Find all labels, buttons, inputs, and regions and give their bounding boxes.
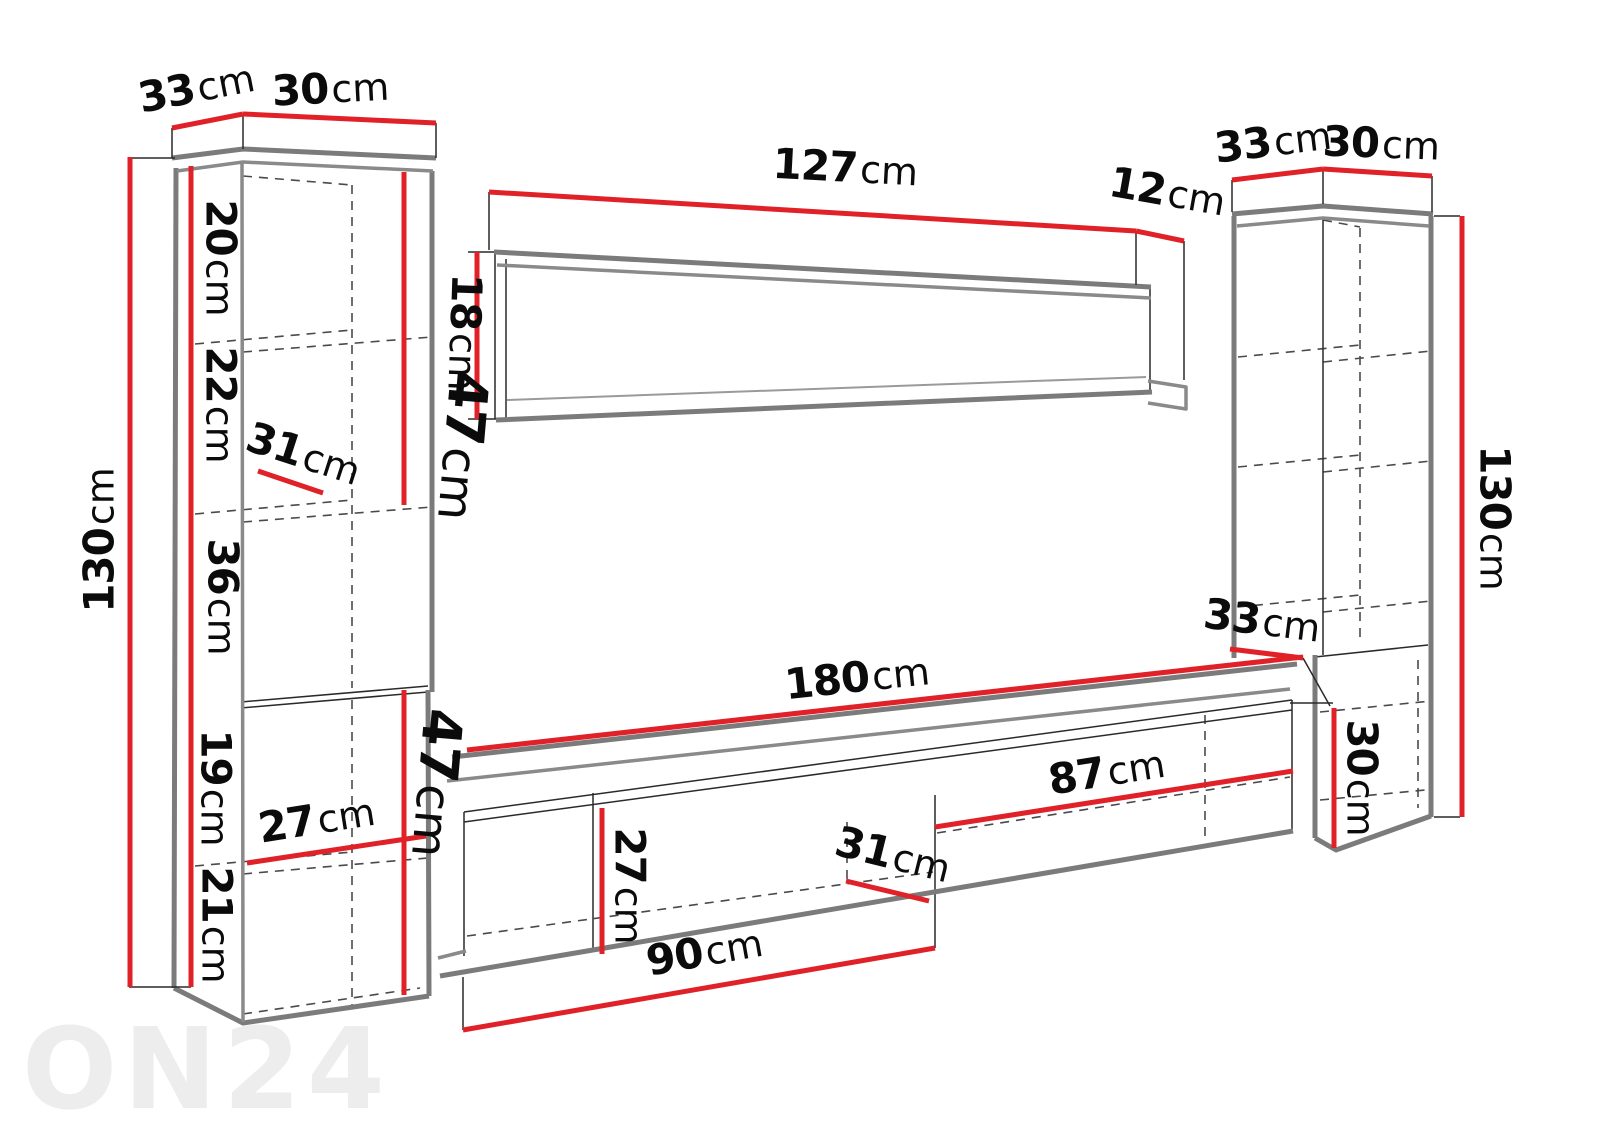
wall-shelf: [494, 252, 1186, 420]
dim-label-right-cabinet-height: 130cm: [1470, 445, 1519, 591]
dim-label-left-section-3: 36cm: [198, 538, 247, 655]
dim-label-left-cabinet-depth: 33cm: [134, 52, 259, 122]
dim-label-shelf-height: 18cm: [438, 273, 491, 392]
dim-label-right-cabinet-depth: 33cm: [1212, 110, 1334, 173]
watermark-logo: ON24: [22, 1005, 391, 1135]
dim-label-left-cabinet-width: 30cm: [271, 61, 391, 116]
dim-label-tv-height: 27cm: [605, 827, 654, 944]
dim-line-shelf-end-depth: [1136, 231, 1184, 241]
dim-label-left-upper-inner-height: 47cm: [425, 369, 501, 523]
dim-label-left-section-5: 21cm: [192, 866, 241, 983]
dim-line-right-width: [1323, 169, 1432, 176]
dim-line-shelf-length: [489, 192, 1136, 231]
dim-line-left-depth: [172, 114, 243, 128]
dim-label-left-section-4: 19cm: [191, 729, 240, 846]
dim-line-right-depth: [1232, 169, 1323, 180]
dim-label-left-section-1: 20cm: [196, 199, 245, 316]
furniture-dimension-diagram: 33cm 30cm 130cm 20cm 22cm 31cm 36cm 47cm…: [0, 0, 1600, 1145]
dim-label-left-section-2: 22cm: [196, 346, 245, 463]
dim-label-right-box-height: 30cm: [1337, 719, 1386, 836]
dim-label-right-cabinet-width: 30cm: [1322, 117, 1441, 170]
dim-label-left-cabinet-height: 130cm: [75, 467, 124, 613]
dim-label-shelf-end-depth: 12cm: [1105, 157, 1229, 226]
dim-label-shelf-length: 127cm: [771, 139, 919, 196]
dim-line-left-width: [243, 114, 436, 123]
